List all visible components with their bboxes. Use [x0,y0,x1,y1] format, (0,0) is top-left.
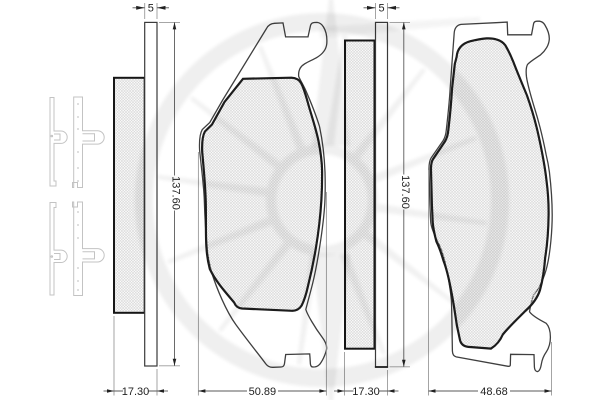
svg-text:50.89: 50.89 [249,386,277,398]
svg-text:5: 5 [378,3,384,15]
svg-text:48.68: 48.68 [480,386,508,398]
svg-text:5: 5 [148,3,154,15]
svg-text:17.30: 17.30 [352,386,380,398]
svg-text:17.30: 17.30 [122,386,150,398]
svg-text:137.60: 137.60 [399,175,411,209]
